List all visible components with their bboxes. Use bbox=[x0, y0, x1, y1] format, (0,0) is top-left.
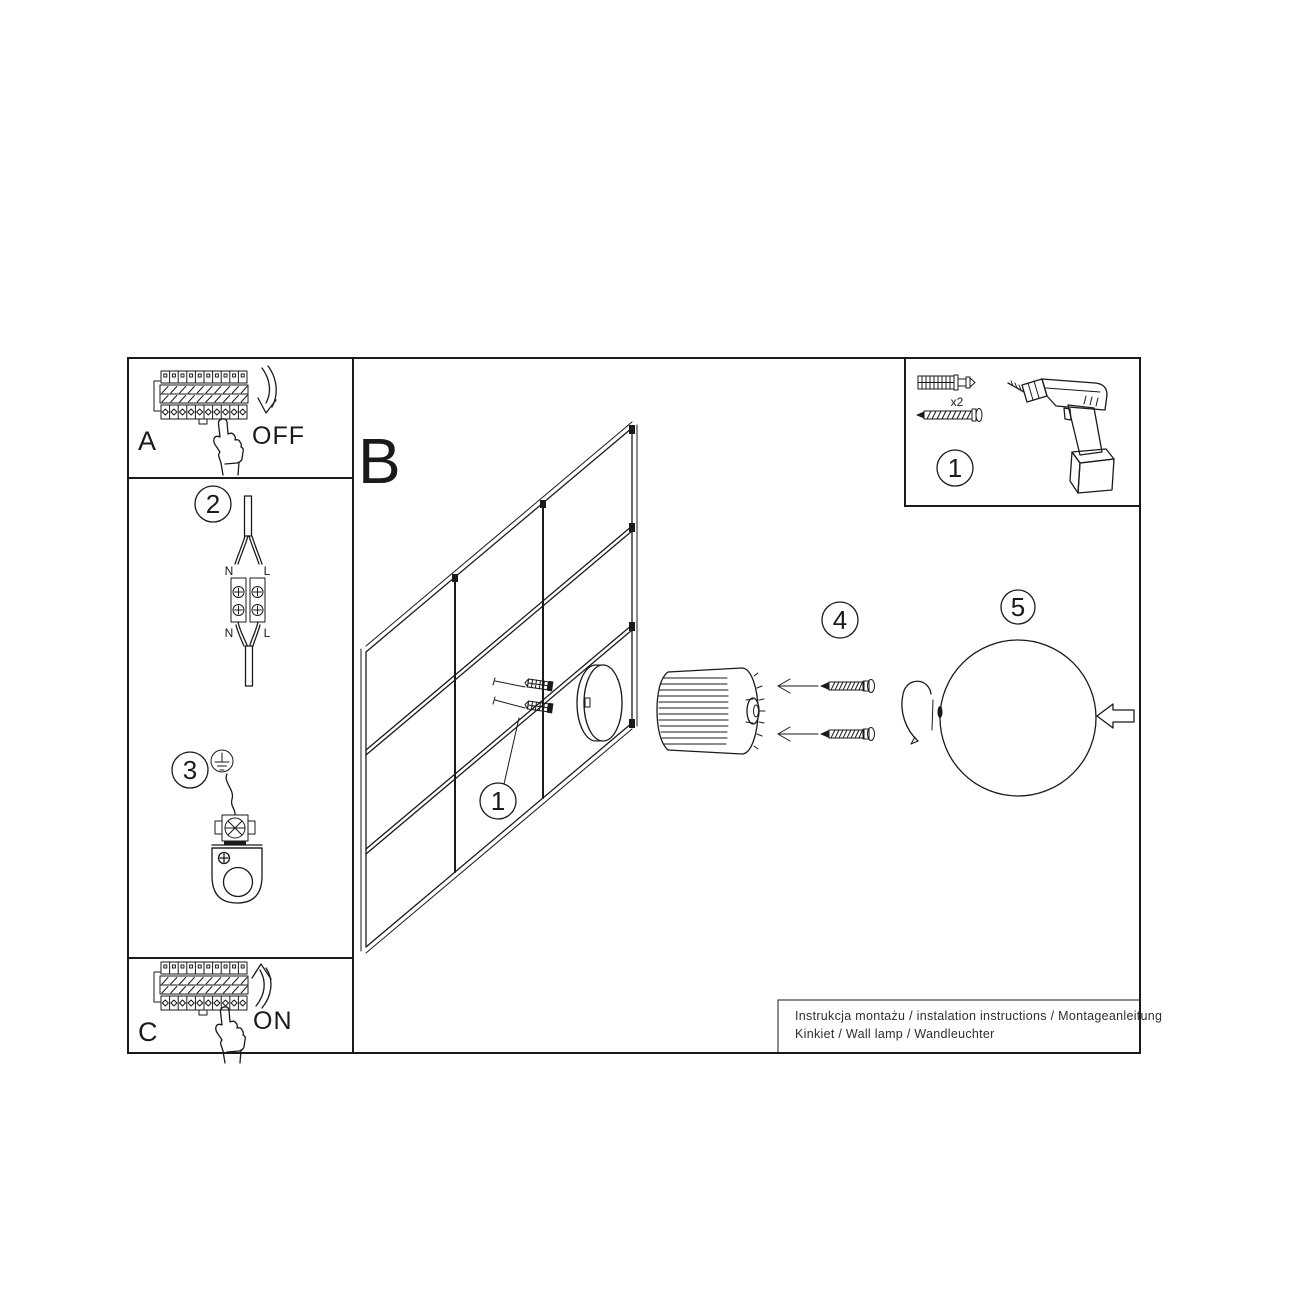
ground-symbol-icon bbox=[211, 750, 233, 772]
step-4-number: 4 bbox=[833, 605, 847, 635]
screw-icon bbox=[916, 409, 982, 422]
pointing-hand-icon bbox=[214, 419, 244, 475]
lamp-body-icon bbox=[657, 668, 765, 754]
instruction-sheet: A OFF 2 N L N L 3 bbox=[0, 0, 1300, 1300]
title-block: Instrukcja montażu / instalation instruc… bbox=[795, 1009, 1162, 1041]
curved-arrow-down-icon bbox=[258, 366, 276, 413]
wall-plug-icon bbox=[918, 375, 975, 390]
ground-wire-icon bbox=[226, 774, 235, 814]
on-label: ON bbox=[253, 1007, 293, 1035]
step-1-number: 1 bbox=[948, 453, 962, 483]
parts-panel: x2 1 bbox=[916, 375, 1114, 493]
ground-terminal-icon bbox=[215, 815, 255, 845]
power-cable-icon bbox=[235, 496, 262, 564]
panel-c: C ON bbox=[138, 962, 293, 1063]
off-label: OFF bbox=[252, 422, 305, 450]
ball-fitting-notch bbox=[938, 706, 943, 718]
hook-wire-icon bbox=[902, 681, 933, 744]
quantity-label: x2 bbox=[951, 395, 964, 409]
drill-icon bbox=[1008, 379, 1114, 493]
terminal-block-icon bbox=[231, 578, 265, 622]
panel-c-label: C bbox=[138, 1017, 158, 1047]
curved-arrow-up-icon bbox=[252, 964, 271, 1008]
step-3-grounding: 3 bbox=[172, 750, 262, 903]
step-5-number: 5 bbox=[1011, 592, 1025, 622]
screw-arrow-icon-2 bbox=[778, 727, 818, 741]
mounting-bracket-icon bbox=[212, 845, 262, 903]
mounting-screw-icon-2 bbox=[820, 728, 875, 741]
step-4-screws: 4 bbox=[778, 602, 875, 741]
wire-label-n-top: N bbox=[225, 564, 234, 578]
step-2-wiring: 2 N L N L bbox=[195, 486, 271, 686]
step-5-shade: 5 bbox=[902, 590, 1134, 796]
mounting-screw-icon bbox=[820, 680, 875, 693]
step-3-number: 3 bbox=[183, 755, 197, 785]
glass-ball-icon bbox=[940, 640, 1096, 796]
pointing-hand-icon-c bbox=[216, 1007, 246, 1063]
left-arrow-icon bbox=[1097, 704, 1134, 728]
wire-label-n-bottom: N bbox=[225, 626, 234, 640]
footer-line1: Instrukcja montażu / instalation instruc… bbox=[795, 1009, 1162, 1023]
step-anchor-number: 1 bbox=[491, 786, 505, 816]
section-b-label: B bbox=[358, 425, 401, 497]
step-2-number: 2 bbox=[206, 489, 220, 519]
footer-line2: Kinkiet / Wall lamp / Wandleuchter bbox=[795, 1027, 995, 1041]
power-cable-bottom-icon bbox=[236, 622, 260, 686]
wire-label-l-bottom: L bbox=[264, 626, 271, 640]
panel-a: A OFF bbox=[138, 366, 305, 475]
screw-arrow-icon bbox=[778, 679, 818, 693]
section-b: B 1 bbox=[358, 422, 1134, 953]
breaker-panel-icon-c bbox=[154, 962, 248, 1015]
breaker-panel-icon bbox=[154, 371, 248, 424]
panel-a-label: A bbox=[138, 426, 156, 456]
parts-panel-box bbox=[905, 358, 1140, 506]
wire-label-l-top: L bbox=[264, 564, 271, 578]
